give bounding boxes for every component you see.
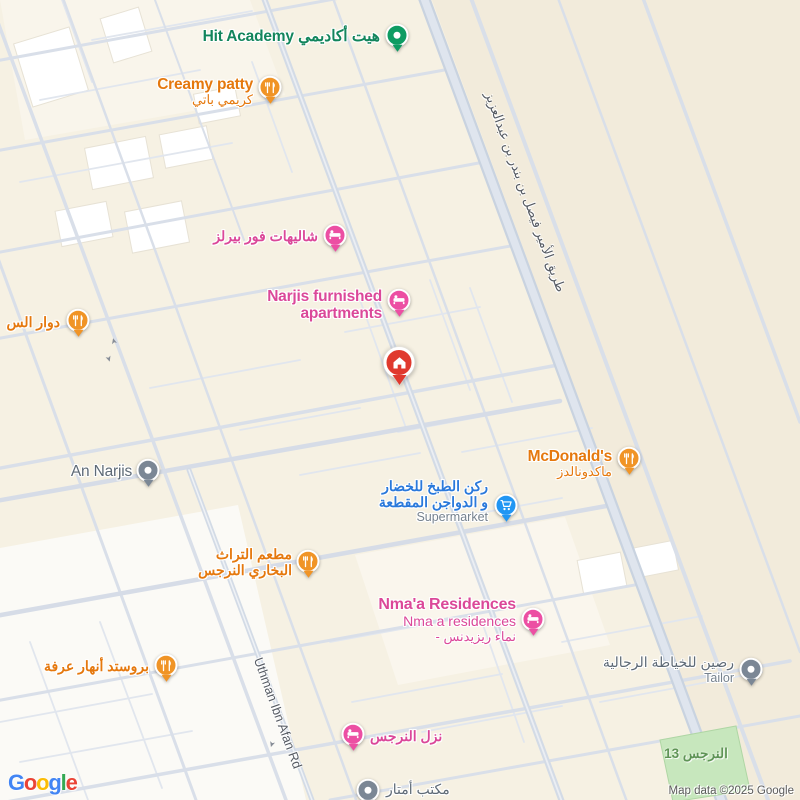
dawar-pin[interactable] bbox=[67, 309, 90, 332]
map-attribution: Map data ©2025 Google bbox=[669, 785, 794, 797]
poi-label-tailor[interactable]: رصين للخياطة الرجالية Tailor bbox=[603, 655, 734, 685]
tailor-pin[interactable] bbox=[740, 658, 763, 681]
poi-name: apartments bbox=[267, 305, 382, 322]
poi-label-amtar-office[interactable]: مكتب أمتار bbox=[386, 782, 450, 798]
poi-label-creamy-patty[interactable]: Creamy patty كريمي باتي bbox=[157, 76, 253, 108]
restaurant-icon bbox=[302, 555, 314, 567]
nmaa-residences-pin[interactable] bbox=[522, 608, 545, 631]
logo-letter: g bbox=[48, 770, 60, 795]
park-label[interactable]: النرجس 13 bbox=[648, 746, 744, 762]
poi-name-ar: كريمي باتي bbox=[157, 93, 253, 108]
dot-icon bbox=[364, 786, 372, 794]
restaurant-icon bbox=[160, 659, 172, 671]
poi-name-ar: دوار الس bbox=[6, 315, 60, 331]
shopping-cart-icon bbox=[500, 499, 513, 512]
poi-label-an-narjis[interactable]: An Narjis bbox=[71, 463, 132, 480]
narjis-apartments-pin[interactable] bbox=[388, 289, 411, 312]
poi-label-hit-academy[interactable]: هيت أكاديمي Hit Academy bbox=[203, 28, 380, 45]
poi-name: هيت أكاديمي Hit Academy bbox=[203, 28, 380, 45]
poi-name-ar: ماكدونالدز bbox=[528, 465, 612, 480]
chalets-pin[interactable] bbox=[324, 224, 347, 247]
poi-name-ar: شاليهات فور بيرلز bbox=[213, 229, 318, 245]
hit-academy-pin[interactable] bbox=[386, 24, 409, 47]
lodging-icon bbox=[527, 613, 540, 626]
poi-label-chalets-four-pearls[interactable]: شاليهات فور بيرلز bbox=[213, 229, 318, 245]
poi-name-ar: مطعم التراث bbox=[198, 547, 292, 563]
dot-icon bbox=[144, 466, 152, 474]
poi-label-supermarket[interactable]: ركن الطبخ للخضار و الدواجن المقطعة Super… bbox=[379, 479, 488, 524]
dot-icon bbox=[747, 665, 755, 673]
poi-label-mcdonalds[interactable]: McDonald's ماكدونالدز bbox=[528, 448, 612, 480]
poi-name: McDonald's bbox=[528, 448, 612, 465]
poi-category: Tailor bbox=[603, 671, 734, 685]
poi-name: Creamy patty bbox=[157, 76, 253, 93]
dot-icon bbox=[393, 31, 401, 38]
poi-label-nazl-narjis[interactable]: نزل النرجس bbox=[370, 729, 442, 745]
restaurant-icon bbox=[72, 314, 84, 326]
poi-name-ar: - نماء ريزيدنس bbox=[378, 630, 516, 645]
poi-category: Supermarket bbox=[379, 510, 488, 524]
restaurant-icon bbox=[623, 452, 635, 464]
poi-name: Nma a residences bbox=[378, 614, 516, 630]
poi-label-nmaa-residences[interactable]: Nma'a Residences Nma a residences - نماء… bbox=[378, 596, 516, 644]
amtar-office-pin[interactable] bbox=[357, 779, 380, 800]
poi-name-ar: ركن الطبخ للخضار bbox=[379, 479, 488, 495]
bukhari-restaurant-pin[interactable] bbox=[297, 550, 320, 573]
logo-letter: o bbox=[24, 770, 36, 795]
home-icon bbox=[391, 355, 407, 371]
lodging-icon bbox=[393, 294, 406, 307]
poi-name: Nma'a Residences bbox=[378, 596, 516, 614]
restaurant-icon bbox=[264, 81, 276, 93]
destination-pin[interactable] bbox=[384, 347, 415, 378]
poi-name: An Narjis bbox=[71, 463, 132, 480]
lodging-icon bbox=[347, 728, 360, 741]
poi-name-ar: البخاري النرجس bbox=[198, 563, 292, 579]
lodging-icon bbox=[329, 229, 342, 242]
poi-label-broasted[interactable]: بروستد أنهار عرفة bbox=[44, 659, 149, 675]
poi-name-ar: بروستد أنهار عرفة bbox=[44, 659, 149, 675]
poi-label-bukhari-restaurant[interactable]: مطعم التراث البخاري النرجس bbox=[198, 547, 292, 578]
google-logo[interactable]: Google bbox=[8, 770, 77, 796]
poi-label-narjis-furnished-apartments[interactable]: Narjis furnished apartments bbox=[267, 288, 382, 323]
creamy-patty-pin[interactable] bbox=[259, 76, 282, 99]
broasted-pin[interactable] bbox=[155, 654, 178, 677]
poi-label-dawar[interactable]: دوار الس bbox=[6, 315, 60, 331]
logo-letter: o bbox=[36, 770, 48, 795]
an-narjis-pin[interactable] bbox=[137, 459, 160, 482]
logo-letter: e bbox=[66, 770, 77, 795]
poi-name-ar: نزل النرجس bbox=[370, 729, 442, 745]
supermarket-pin[interactable] bbox=[495, 494, 518, 517]
logo-letter: G bbox=[8, 770, 24, 795]
poi-name-ar: مكتب أمتار bbox=[386, 782, 450, 798]
nazl-narjis-pin[interactable] bbox=[342, 723, 365, 746]
mcdonalds-pin[interactable] bbox=[618, 447, 641, 470]
map-canvas[interactable]: ➤ ➤ ➤ طريق الأمير فيصل بن بندر بن عبدالع… bbox=[0, 0, 800, 800]
poi-name-ar: و الدواجن المقطعة bbox=[379, 495, 488, 511]
poi-name: Narjis furnished bbox=[267, 288, 382, 305]
poi-name-ar: رصين للخياطة الرجالية bbox=[603, 655, 734, 671]
